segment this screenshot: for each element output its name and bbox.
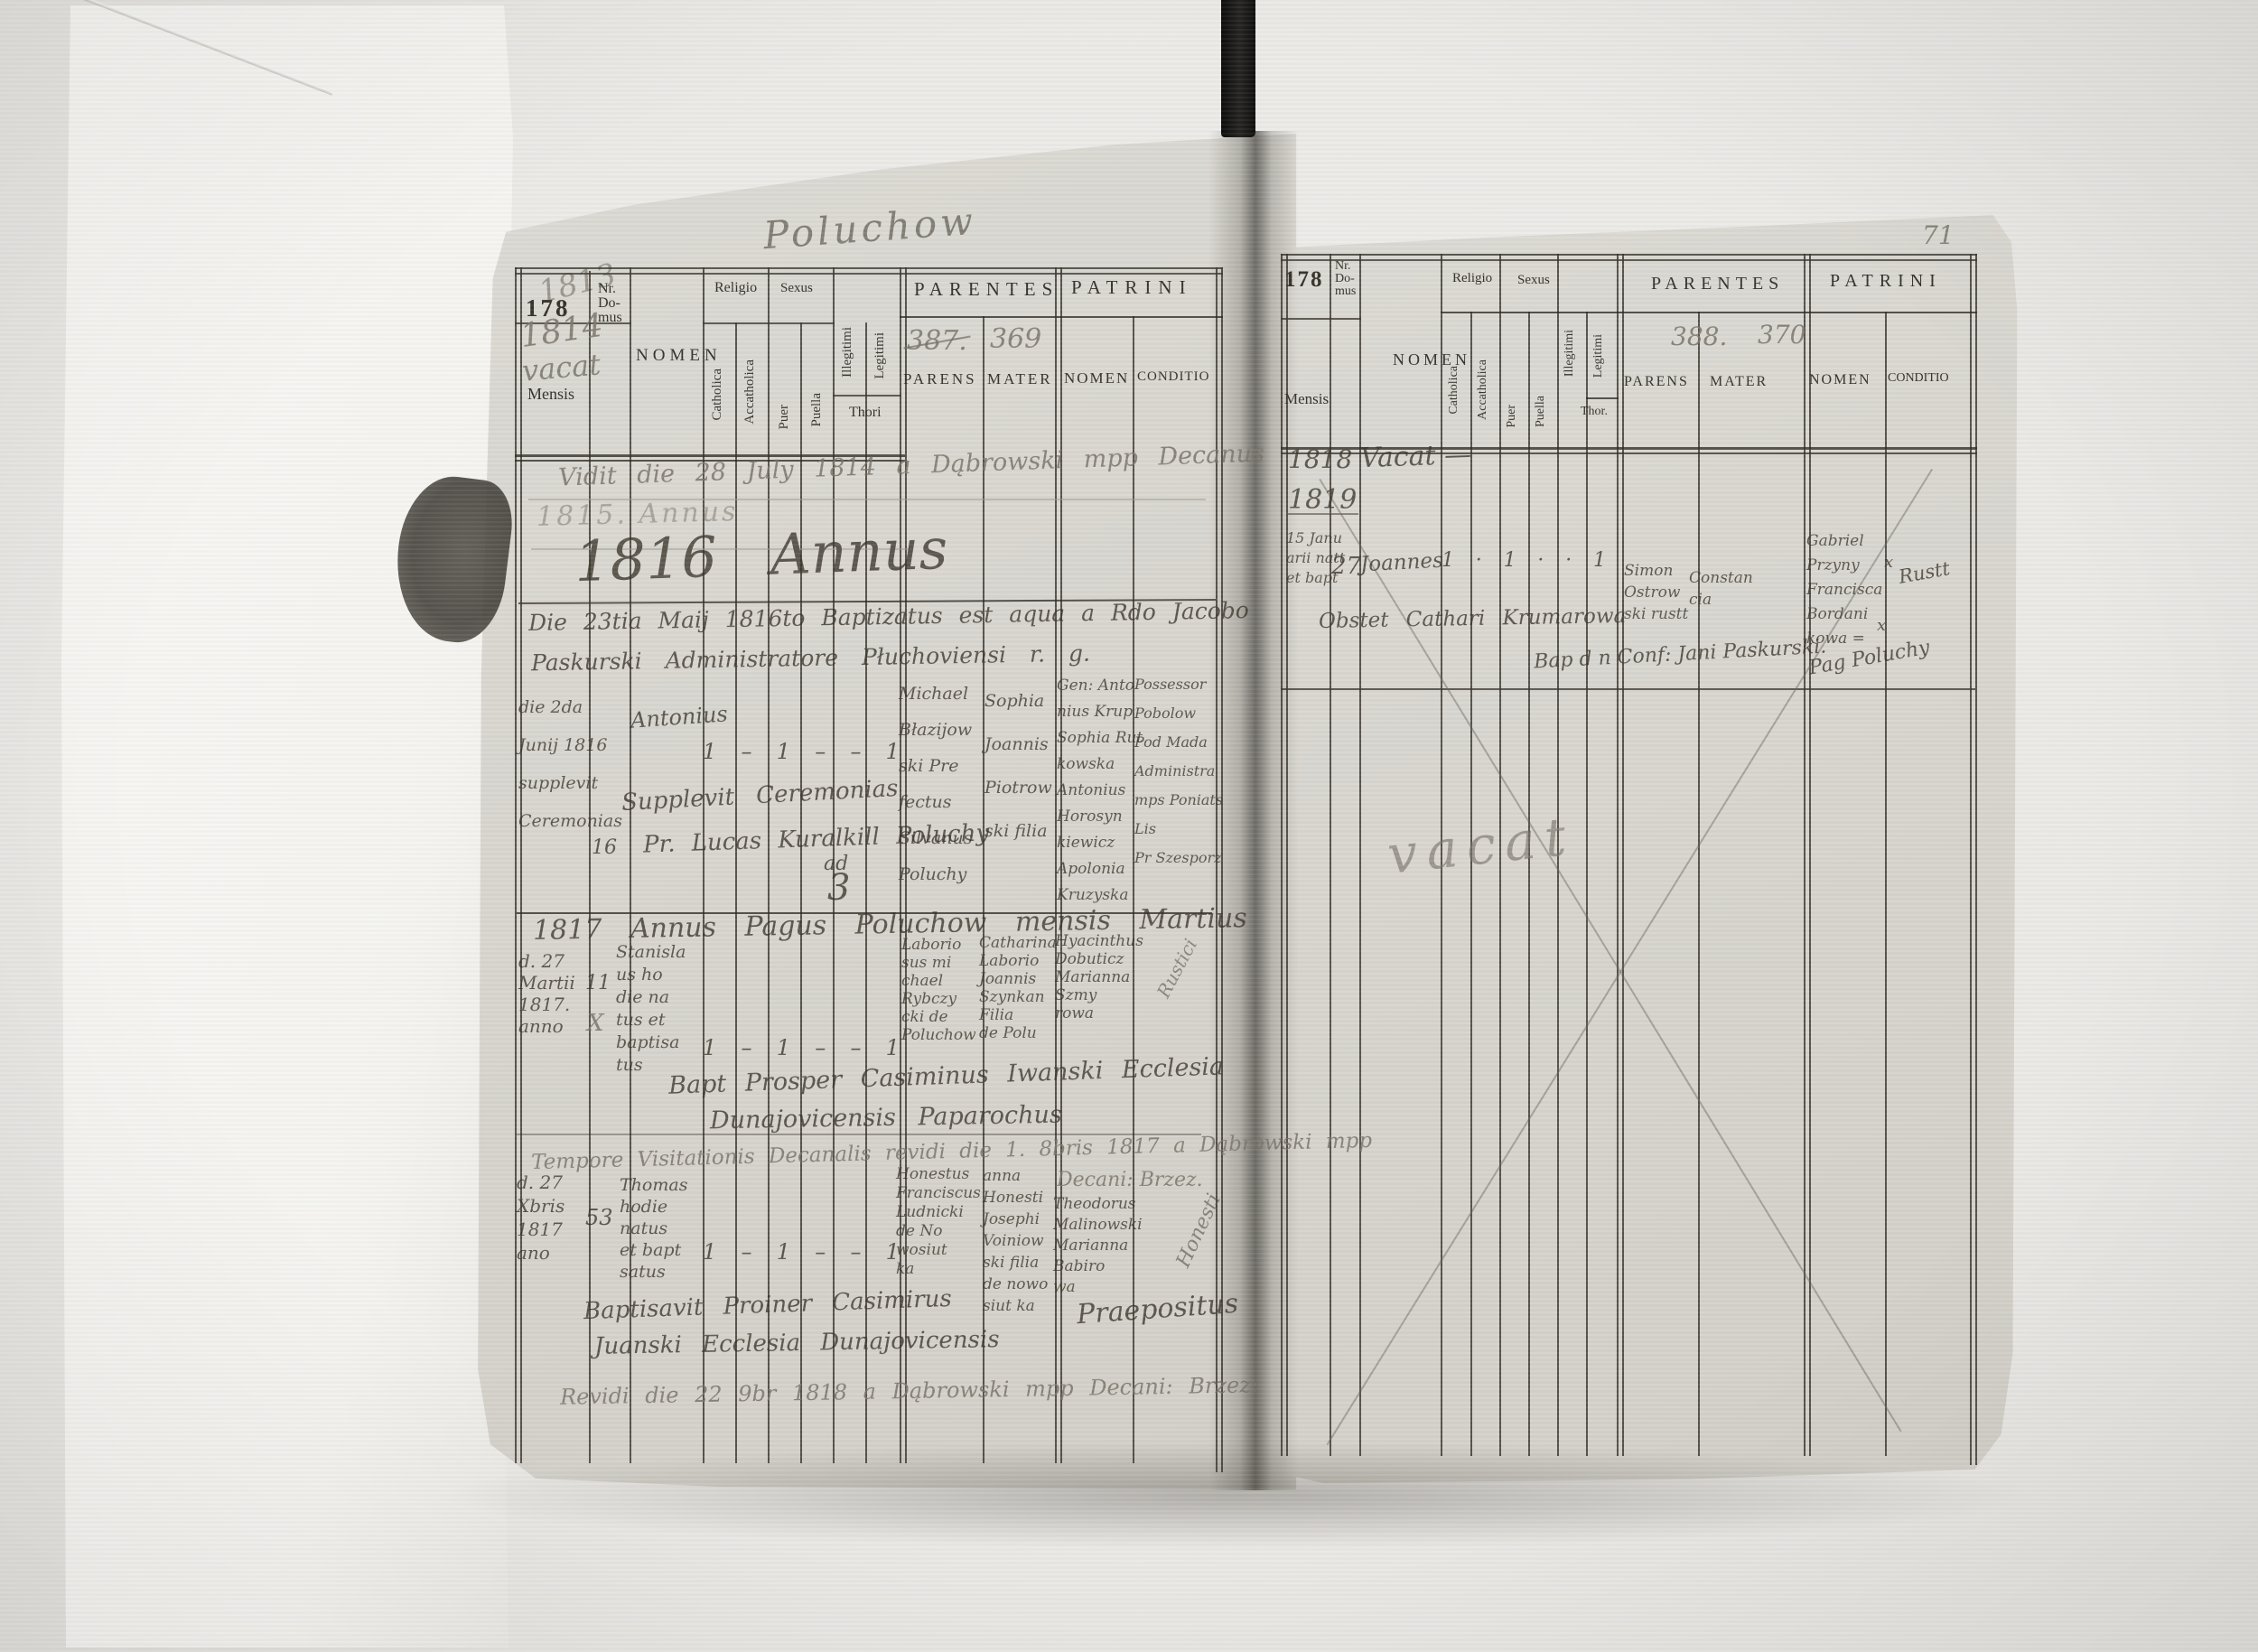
entry1816-mensis: die 2da Junij 1816 supplevit Ceremonias <box>518 688 622 840</box>
grid-line <box>1622 254 1624 1456</box>
tick: 1 <box>1593 549 1606 572</box>
grid-line <box>703 322 835 324</box>
grid-line <box>1970 254 1972 1465</box>
grid-line <box>1586 397 1619 399</box>
grid-line <box>1281 259 1977 261</box>
entry1816-mater: Sophia Joannis Piotrow ski filia <box>984 679 1052 853</box>
entry1817b-nr-domus: 53 <box>585 1205 613 1230</box>
entry1817b-mensis: d. 27 Xbris 1817 ano <box>517 1171 564 1265</box>
grid-line <box>520 267 522 1463</box>
entry1817a-mater: Catharina Laborio Joannis Szynkan Filia … <box>979 934 1057 1042</box>
entry1819-patrini-nomen: Gabriel Przyny Francisca Bordani kowa = <box>1806 529 1882 651</box>
spine-strap <box>1221 0 1255 137</box>
tick: – <box>815 1035 826 1060</box>
grid-line <box>1698 312 1700 1456</box>
tick: · <box>1565 549 1572 572</box>
grid-line <box>515 267 1223 269</box>
grid-line <box>1809 254 1811 1456</box>
page-corner-number: 71 <box>1922 220 1955 250</box>
col-header-patrini: PATRINI <box>1071 276 1193 299</box>
visitation-note-tail: Decani: Brzez. <box>1057 1169 1203 1191</box>
running-number-mater: 370 <box>1758 320 1805 350</box>
entry1817b-mater: anna Honesti Josephi Voiniow ski filia d… <box>983 1165 1048 1317</box>
col-header-puer: Puer <box>777 405 792 430</box>
entry1819-mater: Constan cia <box>1689 567 1753 611</box>
entry1817a-nomen: Stanisla us ho die na tus et baptisa tus <box>616 941 686 1077</box>
entry1819-parens: Simon Ostrow ski rustt <box>1624 560 1688 625</box>
entry1817b-nomen: Thomas hodie natus et bapt satus <box>620 1174 687 1283</box>
col-header-mensis: Mensis <box>527 385 574 404</box>
grid-line <box>1586 312 1588 1456</box>
col-header-patrini-nomen: NOMEN <box>1064 369 1129 387</box>
col-header-thor: Thor. <box>1581 405 1608 419</box>
col-header-acatholica: Accatholica <box>1476 359 1490 420</box>
entry1817b-parens: Honestus Franciscus Ludnicki de No wosiu… <box>896 1165 981 1279</box>
tick: 1 <box>1504 549 1516 572</box>
tick: 1 <box>886 1035 900 1060</box>
col-header-puer: Puer <box>1505 405 1519 428</box>
register-scan-photo: 178 1813 Nr. Do- mus 1814 vacat Mensis N… <box>0 0 2258 1652</box>
grid-line <box>589 271 591 1463</box>
grid-line <box>1441 312 1977 313</box>
entry1817a-x-mark: X <box>587 1010 604 1037</box>
grid-line <box>768 267 770 1463</box>
col-header-mater: MATER <box>987 370 1053 388</box>
grid-line <box>1281 254 1977 256</box>
tick: 1 <box>777 1035 790 1060</box>
col-header-sexus: Sexus <box>1517 273 1550 288</box>
entry1816-parens: Michael Błazijow ski Pre fectus Silvanus… <box>899 676 972 892</box>
entry1817b-patrini-nomen: Theodorus Malinowski Marianna Babiro wa <box>1053 1194 1143 1298</box>
grid-line <box>1359 254 1361 1456</box>
grid-line <box>1470 312 1472 1456</box>
tick: · <box>1537 549 1544 572</box>
grid-line <box>1528 312 1530 1456</box>
tick: 1 <box>886 739 900 764</box>
entry1817a-tally-marks: 1 – 1 – – 1 <box>703 1035 900 1060</box>
col-header-legitimi: Legitimi <box>1591 334 1606 378</box>
col-header-conditio: CONDITIO <box>1137 369 1210 385</box>
grid-line <box>1286 254 1288 1456</box>
grid-line <box>1885 312 1887 1456</box>
entry1819-nr-domus: 27 <box>1331 553 1361 580</box>
entry1817b-tally-marks: 1 – 1 – – 1 <box>703 1239 900 1265</box>
tick: – <box>742 1035 752 1060</box>
tick: – <box>850 739 861 764</box>
entry1817a-parens: Laborio sus mi chael Rybczy cki de Poluc… <box>901 936 976 1044</box>
col-header-parens: PARENS <box>1624 374 1689 390</box>
tick: 1 <box>703 1035 716 1060</box>
tick: 1 <box>1442 549 1454 572</box>
col-header-catholica: Catholica <box>1447 366 1461 415</box>
col-header-thori: Thori <box>849 405 882 421</box>
grid-line <box>1281 688 1975 690</box>
year-1819: 1819 <box>1288 484 1357 516</box>
grid-line <box>517 1134 1201 1135</box>
grid-line <box>515 267 517 1463</box>
vacat-label: Vacat — <box>1359 439 1471 474</box>
col-header-mater: MATER <box>1710 374 1768 390</box>
tick: 1 <box>777 1239 790 1265</box>
col-header-puella: Puella <box>1534 396 1548 427</box>
tick: – <box>850 1035 861 1060</box>
grid-line <box>1617 254 1619 1456</box>
right-page-paper <box>1287 134 2019 1489</box>
grid-line <box>703 267 704 1463</box>
tick: 1 <box>777 739 790 764</box>
entry1816-tally-marks: 1 – 1 – – 1 <box>703 739 900 764</box>
col-header-parens: PARENS <box>903 370 977 388</box>
col-header-catholica: Catholica <box>710 369 725 420</box>
entry1817a-nr-domus: 11 <box>585 972 611 994</box>
entry1816-patrini-nomen: Gen: Anto nius Krup Sophia Rut kowska An… <box>1057 673 1143 909</box>
tick: – <box>815 739 826 764</box>
entry1816-supplevit-number: 3 <box>827 867 850 909</box>
col-header-parentes: PARENTES <box>1651 274 1784 294</box>
tick: – <box>742 739 752 764</box>
grid-line <box>630 267 631 1463</box>
entry1816-nr-domus: 16 <box>592 836 617 859</box>
col-header-puella: Puella <box>809 393 825 427</box>
entry1817a-mensis: d. 27 Martii 1817. anno <box>518 950 575 1037</box>
tick: 1 <box>703 739 716 764</box>
vacat-year: 1818 <box>1288 444 1352 474</box>
col-header-parentes: PARENTES <box>914 278 1059 301</box>
entry1817a-patrini-nomen: Hyacinthus Dobuticz Marianna Szmy rowa <box>1055 932 1143 1022</box>
col-header-mensis: Mensis <box>1284 390 1329 408</box>
pencil-vacat-note: vacat <box>521 347 602 387</box>
entry1819-witness-mark: x <box>1884 553 1893 572</box>
page-number-printed: 178 <box>1284 267 1324 293</box>
col-header-illegitimi: Illegitimi <box>1563 330 1577 377</box>
tick: – <box>850 1239 861 1265</box>
col-header-illegitimi: Illegitimi <box>840 327 855 378</box>
grid-line <box>1330 254 1331 1456</box>
col-header-religio: Religio <box>714 280 757 296</box>
book-bottom-shadow <box>434 1442 2041 1550</box>
grid-line <box>1281 318 1361 320</box>
col-header-patrini-nomen: NOMEN <box>1809 372 1871 388</box>
running-number-parens: 388. <box>1671 322 1727 351</box>
entry1819-witness-mark: x <box>1877 616 1886 635</box>
grid-line <box>515 273 1223 275</box>
col-header-nomen: NOMEN <box>636 346 722 366</box>
running-number-mater: 369 <box>990 323 1041 355</box>
annus-1816-heading: 1816 Annus <box>574 516 949 594</box>
entry1819-tally-marks: 1 · 1 · · 1 <box>1442 549 1606 572</box>
col-header-conditio: CONDITIO <box>1888 371 1949 386</box>
tick: 1 <box>703 1239 716 1265</box>
col-header-acatholica: Accatholica <box>742 359 758 425</box>
grid-line <box>1975 254 1977 1465</box>
running-number-parens: 387. <box>907 325 967 357</box>
col-header-religio: Religio <box>1452 271 1492 286</box>
backdrop-sheet <box>61 5 513 1647</box>
col-header-patrini: PATRINI <box>1830 271 1942 292</box>
tick: – <box>815 1239 826 1265</box>
grid-line <box>1281 254 1283 1456</box>
tick: · <box>1476 549 1482 572</box>
grid-line <box>900 316 1223 318</box>
col-header-legitimi: Legitimi <box>872 332 888 379</box>
col-header-nr-domus: Nr. Do- mus <box>1335 260 1356 298</box>
col-header-sexus: Sexus <box>780 281 813 296</box>
grid-line <box>833 395 901 397</box>
tick: – <box>742 1239 752 1265</box>
entry1816-patrini-conditio: Possessor Pobolow Pod Mada Administra mp… <box>1134 670 1223 873</box>
entry1819-nomen: Joannes <box>1359 549 1443 577</box>
